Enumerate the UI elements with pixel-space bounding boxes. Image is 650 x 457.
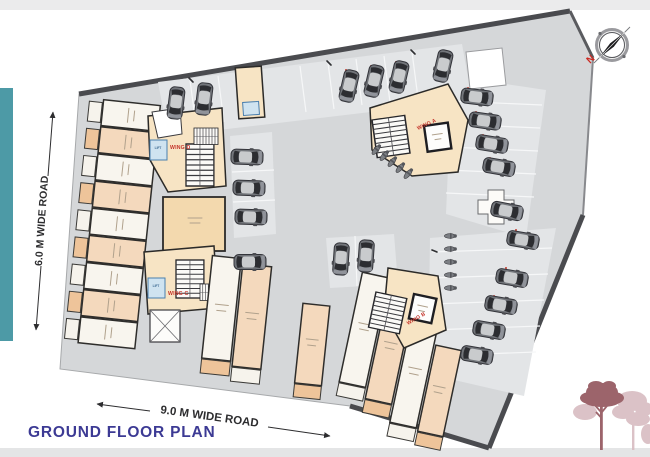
car-icon (234, 253, 266, 271)
stairs-icon (369, 292, 407, 334)
shop-room (163, 197, 225, 251)
compass-icon: N (585, 27, 630, 66)
ramp-room (150, 310, 180, 342)
lift-room (243, 101, 260, 115)
wing-c-label: WING C (168, 291, 189, 297)
lift-label: LIFT (155, 146, 162, 150)
car-icon (231, 147, 264, 166)
stairs-icon (194, 128, 218, 145)
lift-label: LIFT (153, 284, 160, 288)
lift-room (150, 140, 167, 160)
floor-plan-page: LIFT WING D LIFT WING C (0, 0, 650, 457)
dimension-arrow-6m: 6.0 M WIDE ROAD (33, 112, 53, 330)
top-border-strip (0, 0, 650, 10)
entrance-notch (466, 48, 506, 89)
bottom-border-strip (0, 448, 650, 457)
tree-illustration (573, 381, 650, 450)
car-icon (233, 178, 266, 197)
wing-d-label: WING D (170, 145, 191, 151)
car-icon (235, 207, 268, 226)
car-icon (356, 239, 376, 272)
plan-title: GROUND FLOOR PLAN (28, 424, 216, 441)
road-label-6m: 6.0 M WIDE ROAD (33, 175, 51, 266)
car-icon (331, 242, 351, 275)
floor-plan-svg: LIFT WING D LIFT WING C (0, 0, 650, 457)
teal-accent-bar (0, 88, 13, 341)
lift-room (148, 278, 165, 298)
